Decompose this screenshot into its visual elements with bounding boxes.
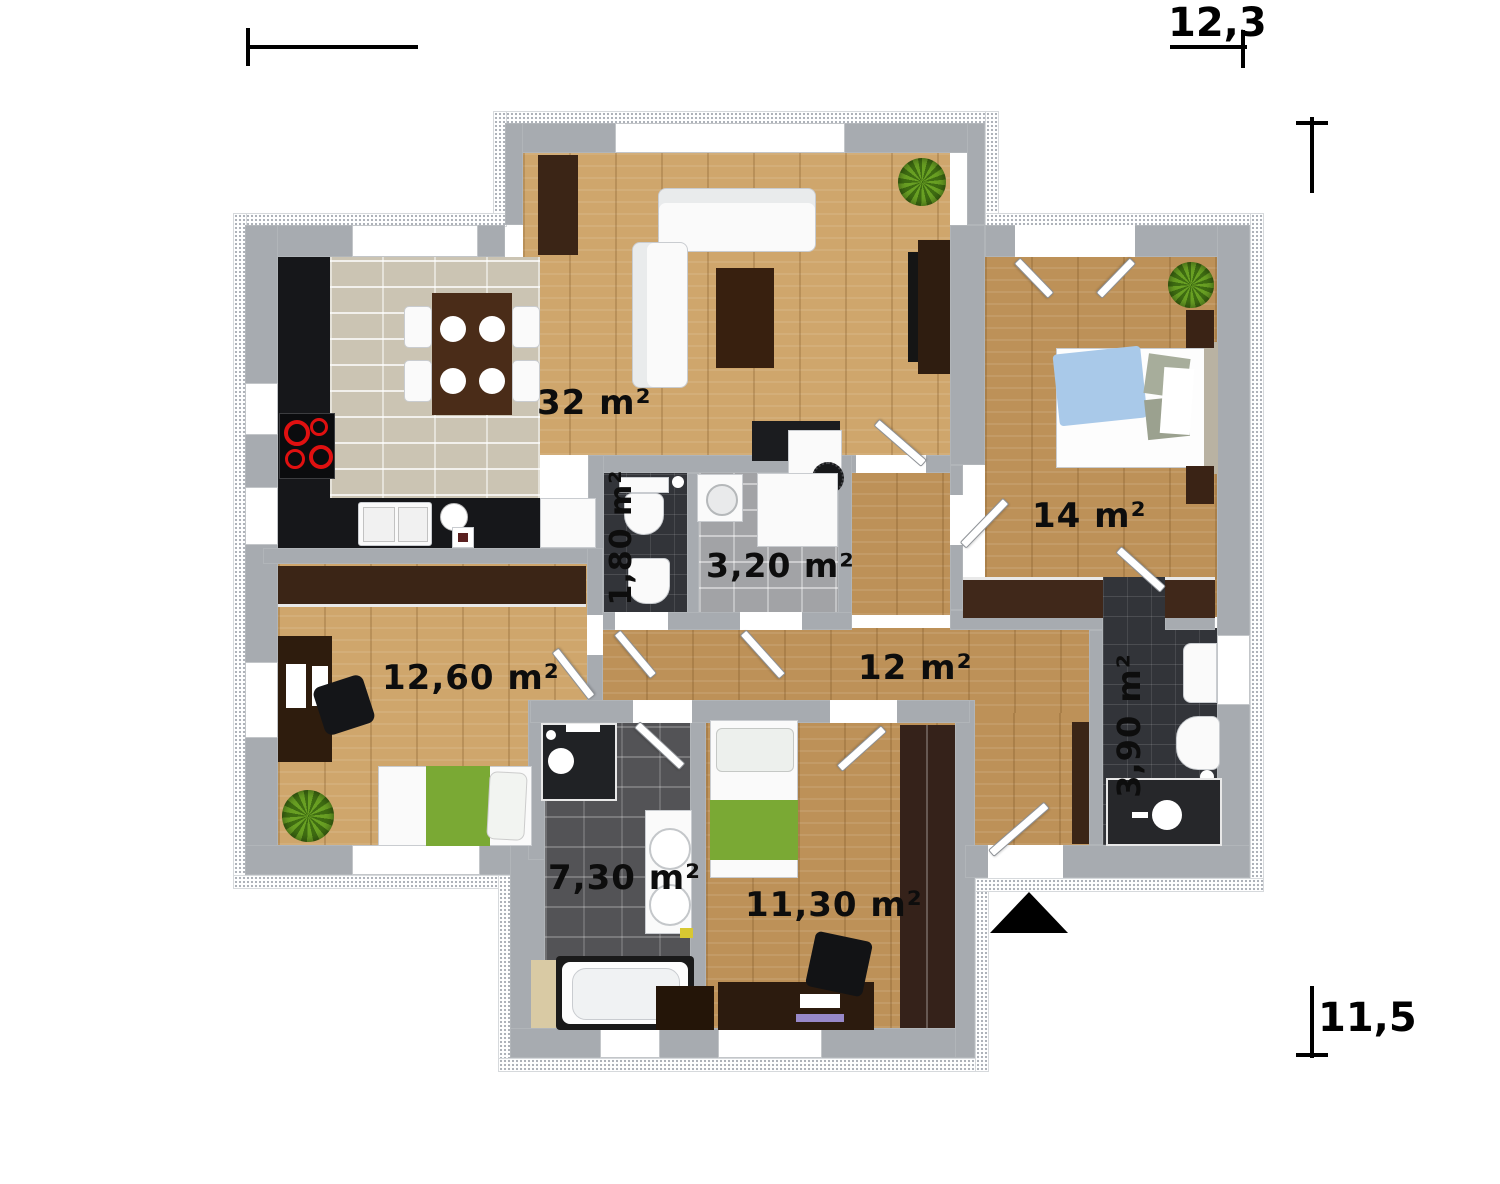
room-label-wc: 1,80 m²	[604, 465, 648, 610]
shower-fixture	[566, 724, 600, 732]
plant-icon	[898, 158, 946, 206]
interior-wall	[1089, 630, 1103, 845]
shower-head-icon	[548, 748, 574, 774]
soap-dish	[680, 928, 693, 938]
room-label-bedroom-main: 14 m²	[1032, 496, 1146, 536]
wardrobe-line	[926, 725, 928, 1028]
insulation-band	[985, 111, 999, 227]
plate	[440, 368, 466, 394]
utility-counter	[757, 473, 838, 547]
shower-head-icon	[1152, 800, 1182, 830]
insulation-band	[498, 1058, 989, 1072]
headboard	[1204, 342, 1218, 474]
office-chair	[805, 931, 873, 998]
throw	[1160, 367, 1195, 435]
nightstand	[1186, 310, 1214, 348]
entrance-arrow-icon	[990, 892, 1068, 933]
window	[1217, 635, 1250, 705]
fridge	[540, 498, 596, 548]
shower-dot	[546, 730, 556, 740]
dimension-line-vertical	[1310, 117, 1314, 193]
room-label-child: 12,60 m²	[382, 658, 560, 698]
pillow	[716, 728, 794, 772]
tv	[908, 252, 918, 362]
washer-drum	[706, 484, 738, 516]
exterior-wall	[505, 123, 523, 225]
interior-wall	[955, 700, 975, 1058]
floor-plan: 32 m² 14 m² 1,80 m² 3,20 m² 12 m² 12,60 …	[0, 0, 1500, 1184]
dimension-tick	[1241, 30, 1245, 68]
insulation-band	[233, 875, 530, 889]
window	[352, 845, 480, 875]
wardrobe	[1165, 577, 1215, 618]
burner	[309, 445, 333, 469]
sink-basin	[398, 507, 428, 542]
sideboard	[538, 155, 578, 255]
interior-wall	[950, 225, 985, 465]
toilet	[1176, 716, 1220, 770]
chair	[512, 306, 540, 348]
burner	[310, 418, 328, 436]
window	[245, 662, 278, 738]
laptop	[286, 664, 306, 708]
hall-cabinet	[1072, 722, 1089, 844]
desk-cabinet	[656, 986, 714, 1030]
room-label-hallway: 12 m²	[858, 648, 972, 688]
dimension-tick	[246, 28, 250, 66]
dimension-tick	[1296, 121, 1328, 125]
dimension-line-horizontal	[248, 45, 418, 49]
dimension-tick	[1296, 1053, 1328, 1057]
window	[718, 1028, 822, 1058]
bath-mat	[531, 960, 557, 1028]
door-opening	[740, 612, 802, 630]
plant-icon	[1168, 262, 1214, 308]
window	[600, 1028, 660, 1058]
decor-box	[452, 527, 474, 548]
desk-accessory	[796, 1014, 844, 1022]
room-label-utility: 3,20 m²	[706, 546, 855, 585]
exterior-wall	[967, 123, 985, 225]
hallway-floor	[850, 465, 950, 615]
plate	[479, 316, 505, 342]
terrace-door-opening	[1015, 225, 1135, 257]
window	[245, 487, 278, 545]
wardrobe	[278, 566, 586, 607]
room-label-bathroom: 7,30 m²	[548, 858, 701, 898]
chair	[404, 360, 432, 402]
flush-button	[672, 476, 684, 488]
dimension-width-label: 12,3	[1168, 0, 1267, 46]
plate	[440, 316, 466, 342]
dining-table	[432, 293, 512, 415]
dimension-line-horizontal	[1170, 45, 1247, 49]
room-label-ensuite: 3,90 m²	[1110, 633, 1156, 818]
door-opening	[615, 612, 668, 630]
blanket	[710, 800, 798, 860]
chair	[404, 306, 432, 348]
sink-basin	[363, 507, 395, 542]
dimension-height-label: 11,5	[1318, 995, 1417, 1041]
blanket-blue	[1052, 346, 1147, 427]
insulation-band	[975, 878, 989, 1072]
wardrobe	[963, 577, 1103, 618]
window	[352, 225, 478, 257]
chair	[512, 360, 540, 402]
room-label-living: 32 m²	[537, 383, 651, 423]
door-opening	[950, 495, 963, 545]
burner	[285, 449, 305, 469]
door-opening	[633, 700, 692, 723]
pillow	[486, 771, 528, 841]
door-opening	[587, 615, 603, 655]
insulation-band	[975, 878, 1264, 892]
door-opening	[830, 700, 897, 723]
dimension-line-vertical	[1310, 986, 1314, 1058]
tv-board	[918, 240, 950, 374]
window	[245, 383, 278, 435]
coffee-table	[716, 268, 774, 368]
nightstand	[1186, 466, 1214, 504]
washbasin	[1183, 643, 1217, 703]
window	[615, 123, 845, 153]
insulation-band	[1250, 213, 1264, 892]
blanket	[426, 766, 490, 846]
keyboard	[800, 994, 840, 1008]
interior-wall	[263, 548, 593, 564]
plant-icon	[282, 790, 334, 842]
room-label-bedroom-second: 11,30 m²	[745, 885, 923, 925]
sofa	[632, 242, 688, 388]
burner	[284, 420, 310, 446]
plate	[479, 368, 505, 394]
